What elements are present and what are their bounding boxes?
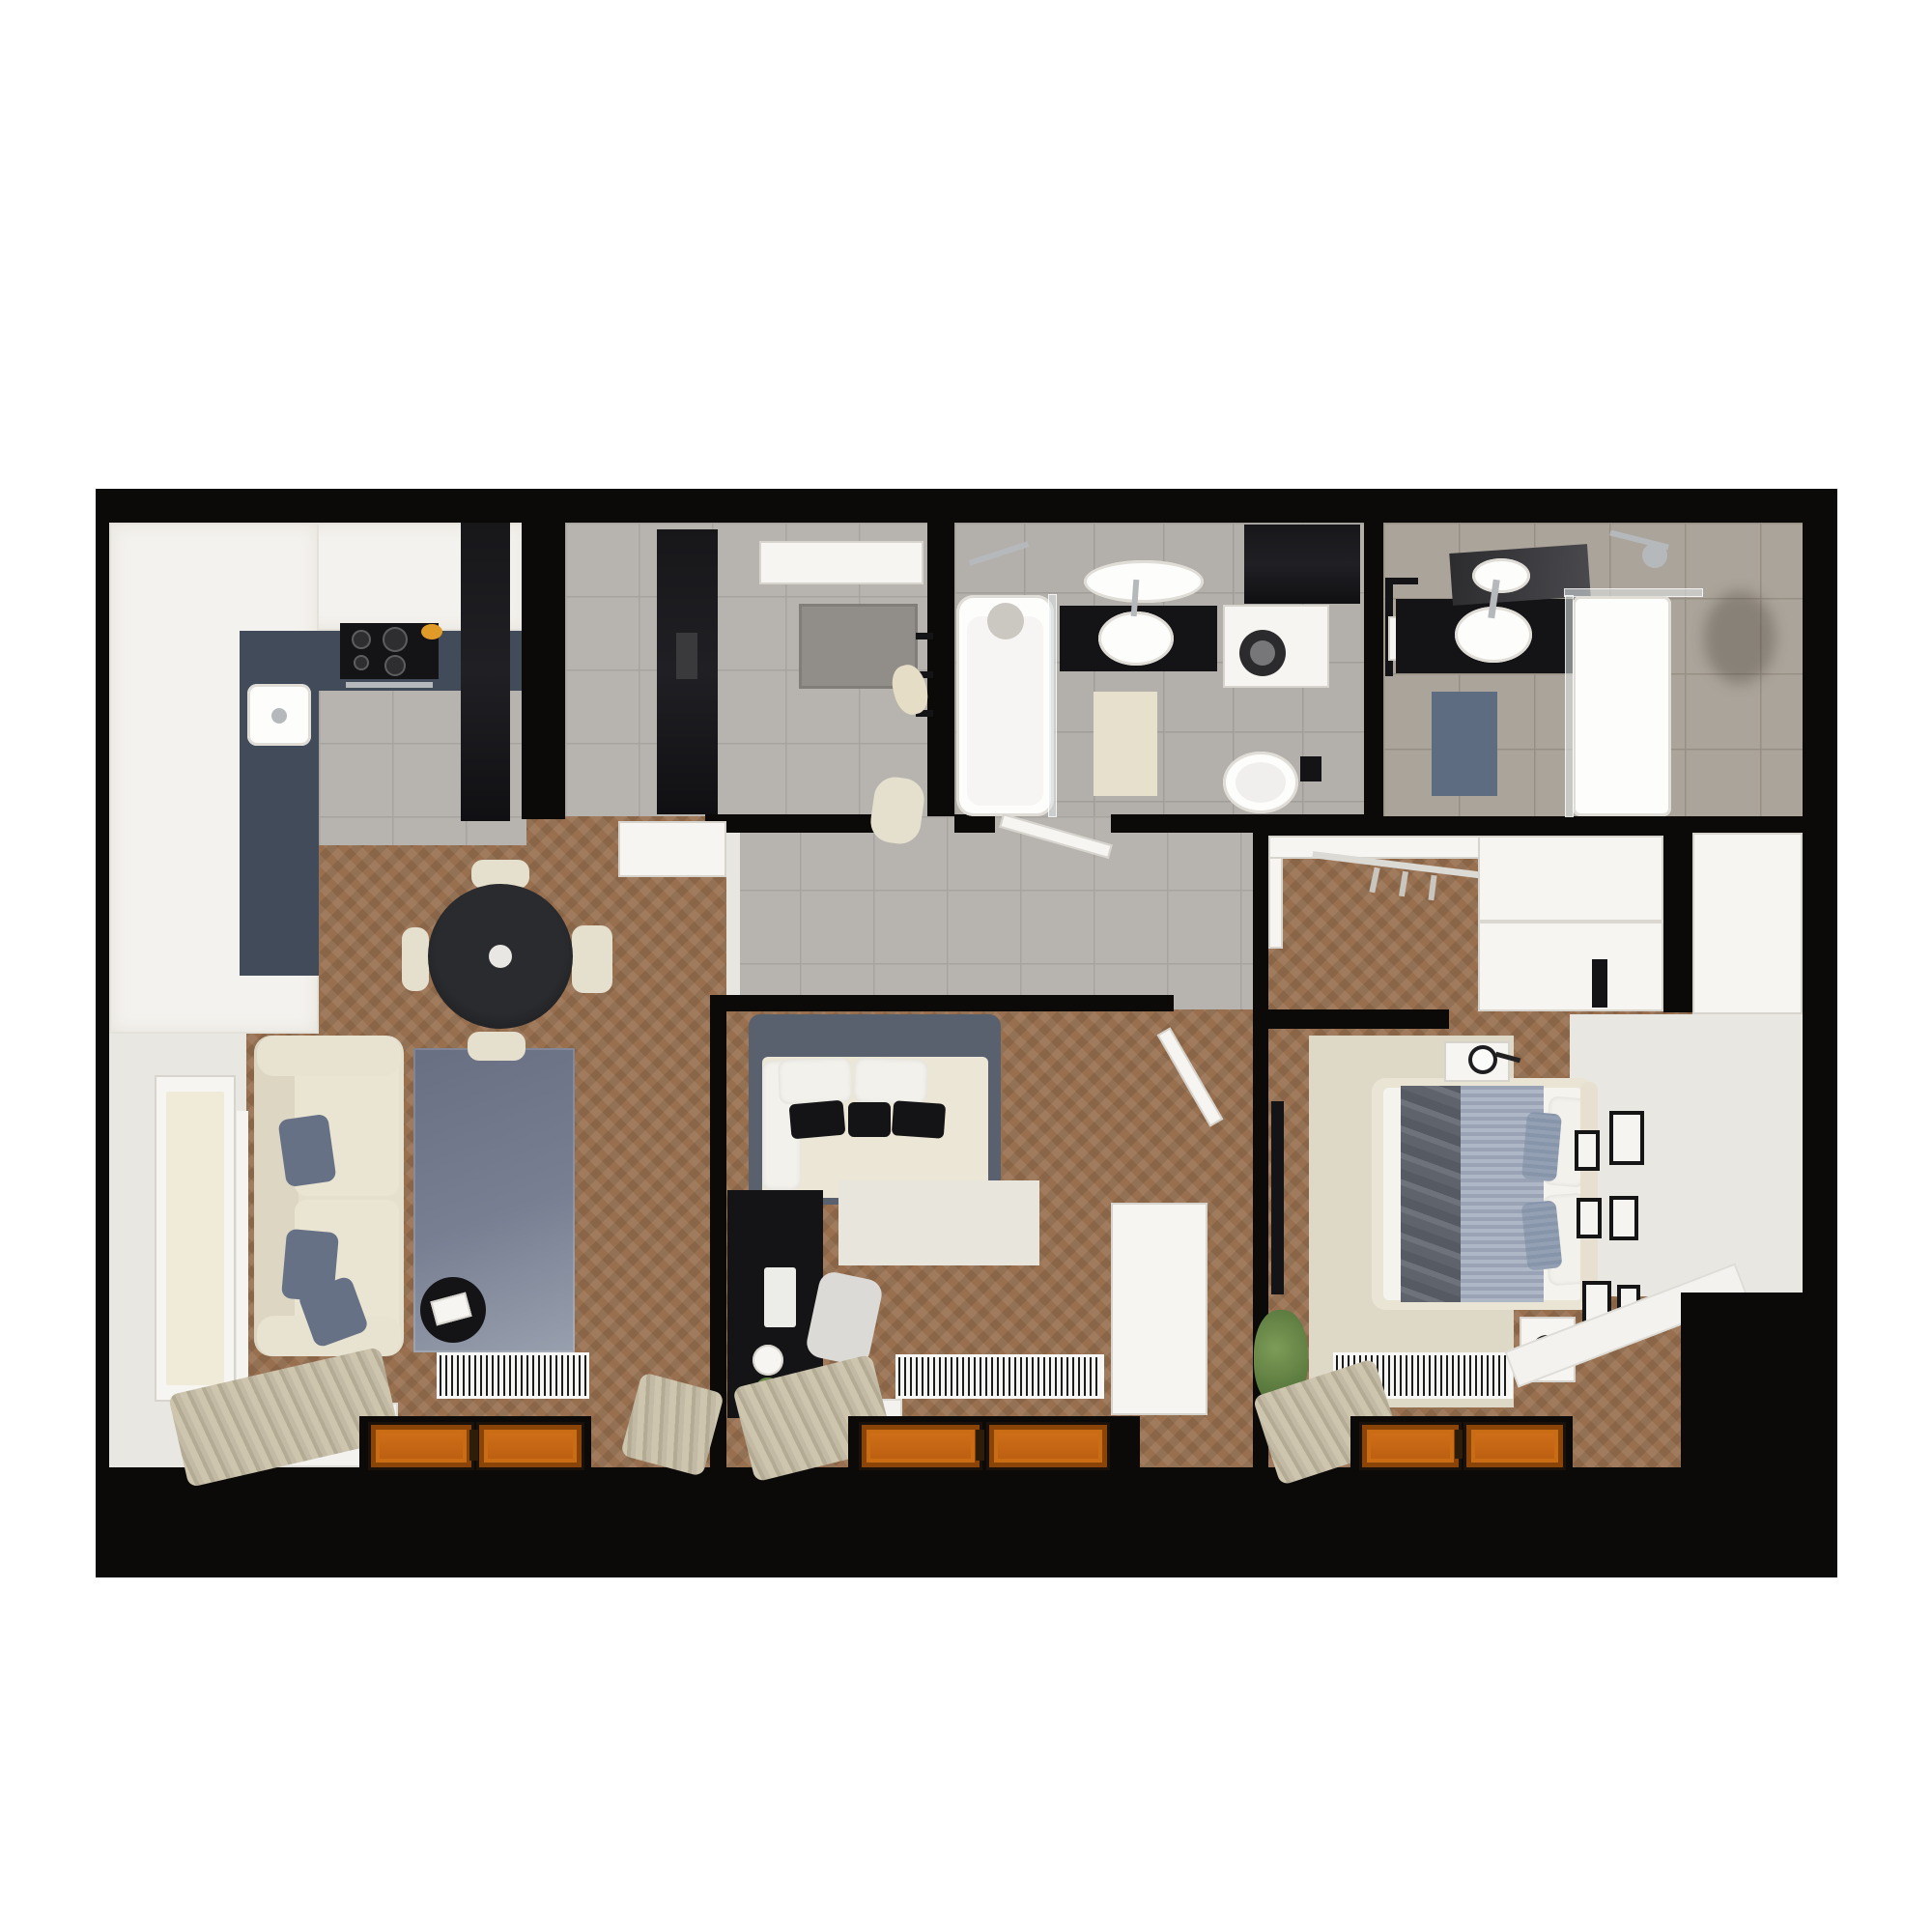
wall-bath1-south-left [954, 814, 995, 833]
wall-rightbedroom-nook [1268, 1009, 1449, 1029]
wall-nook-stub [1663, 816, 1692, 1012]
toilet-flush-plate [1300, 756, 1321, 781]
right-bedroom-east-wall-face [1570, 1014, 1803, 1296]
fruit-bowl [421, 624, 442, 639]
wall-lamp [1468, 1045, 1497, 1074]
wall-bath1-south-right [1111, 814, 1364, 833]
sofa-pillow [277, 1114, 336, 1188]
toilet-seat [1236, 762, 1286, 803]
living-room-window [479, 1425, 582, 1467]
kitchen-lower-cabinets-left [240, 631, 319, 976]
sink-drain [271, 708, 287, 724]
dining-chair [402, 927, 429, 991]
mid-bed-cushion [892, 1100, 946, 1139]
bathtub-inner [967, 616, 1043, 806]
wall-bath2-south [1383, 816, 1663, 836]
wardrobe-mirror [676, 633, 697, 679]
wall-rightbedroom-west-upper [1253, 814, 1268, 840]
shower-wall-shadow [1704, 591, 1776, 684]
bath2-towel-rack-arm [1385, 578, 1418, 584]
wall-kitchen-hall [522, 523, 565, 819]
washer-drum-inner [1250, 640, 1275, 666]
gallery-frame [1609, 1196, 1638, 1240]
mid-bedroom-window [989, 1425, 1107, 1467]
fridge-column [461, 523, 510, 821]
sofa-armrest [257, 1036, 401, 1076]
east-closet [1692, 833, 1803, 1014]
living-room-radiator [440, 1355, 586, 1396]
bedroom-tv [1271, 1101, 1284, 1294]
keyboard [764, 1267, 796, 1327]
bath1-mirror-reflection [1084, 560, 1204, 603]
gallery-frame [1575, 1130, 1600, 1171]
coat-hook [916, 633, 933, 639]
cooktop-burner [352, 630, 371, 649]
shower-tray [1573, 596, 1671, 816]
cooktop-burner [354, 655, 369, 670]
cooktop-burner [383, 627, 408, 652]
bath2-mat [1432, 692, 1497, 796]
bath1-basin [1098, 611, 1174, 666]
oven-handle [346, 682, 433, 688]
wall-midbedroom-north [710, 995, 1174, 1011]
nook-shelf [1268, 836, 1481, 859]
floor-threshold [726, 816, 740, 1009]
bathtub-glass-screen [1049, 595, 1056, 816]
leaning-art-canvas [166, 1092, 224, 1385]
bed-headboard [1580, 1082, 1598, 1306]
mid-bed-cushion [789, 1100, 846, 1140]
mid-bed-pillow [853, 1058, 928, 1105]
window-handle [1455, 1430, 1463, 1459]
entry-door [759, 541, 923, 584]
mid-bed-pillow [778, 1058, 853, 1105]
sofa-backrest [254, 1036, 298, 1356]
dining-chair [572, 925, 612, 993]
cooktop-burner [384, 655, 406, 676]
right-bedroom-window [1466, 1425, 1563, 1467]
bathtub-head-rest [987, 603, 1024, 639]
bath1-tall-cabinet [1244, 525, 1360, 604]
nook-closet-divider [1478, 920, 1663, 923]
shower-glass-top [1565, 589, 1702, 596]
mid-bedroom-radiator [898, 1357, 1101, 1396]
wall-bath1-bath2 [1364, 523, 1383, 816]
mid-bedroom-window [862, 1425, 980, 1467]
apartment-floorplan-render [0, 0, 1932, 1932]
bed-pillow-blue [1521, 1112, 1562, 1182]
shower-glass-side [1566, 596, 1573, 816]
wall-bath2-south-east [1692, 816, 1803, 833]
living-tv-bench [618, 821, 726, 877]
mid-bedroom-dresser [1111, 1203, 1207, 1415]
mid-bedroom-rug [838, 1180, 1039, 1265]
wall-hall-bath1 [927, 523, 954, 816]
nook-tv-panel [1592, 959, 1607, 1008]
bed-throw-runner [1401, 1086, 1461, 1302]
corner-wall-mass [1681, 1293, 1803, 1467]
living-room-window [371, 1425, 471, 1467]
bath2-mirror-basin [1472, 558, 1530, 593]
dining-chair [468, 1032, 526, 1061]
bed-pillow-blue [1520, 1200, 1562, 1270]
curtain-edge-strip [237, 1111, 248, 1391]
shower-head [1642, 543, 1667, 568]
window-handle [976, 1430, 984, 1461]
gallery-frame [1609, 1111, 1644, 1165]
table-centerpiece [489, 945, 512, 968]
corridor-floor [726, 816, 1253, 1009]
bath1-mat [1094, 692, 1157, 796]
right-bedroom-window [1362, 1425, 1459, 1467]
paper-roll [753, 1345, 783, 1376]
mid-bed-cushion [848, 1102, 891, 1137]
gallery-frame [1577, 1198, 1602, 1238]
window-handle [469, 1430, 478, 1461]
nook-closet [1478, 836, 1663, 1011]
